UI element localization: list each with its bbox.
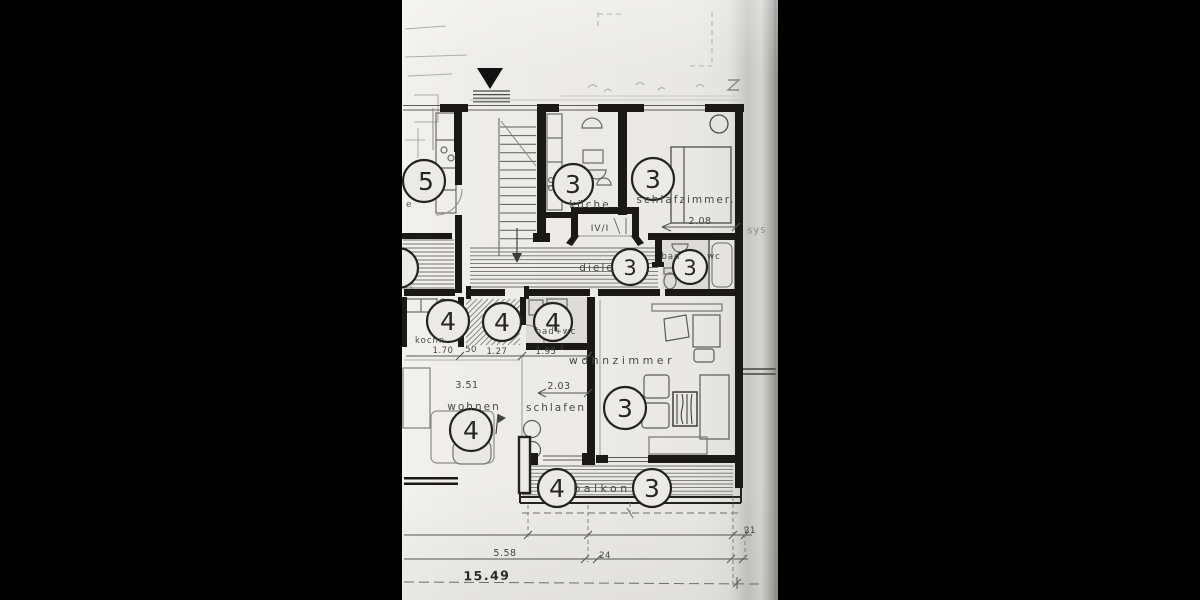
letterbox-bar-left bbox=[0, 0, 402, 600]
room-label-schlafen: schlafen bbox=[526, 402, 586, 414]
unit-number: 3 bbox=[645, 165, 661, 194]
room-label-wohnzimmer: wohnzimmer bbox=[569, 354, 675, 367]
dim-kochnische: 1.70 bbox=[433, 346, 454, 356]
letterbox-bar-right bbox=[778, 0, 1200, 600]
unit-number: 4 bbox=[440, 307, 456, 336]
dim-schlafzimmer: 2.08 bbox=[688, 216, 711, 227]
room-label-balkon: balkon bbox=[573, 482, 630, 495]
dim-bad: 1.95 bbox=[536, 347, 557, 357]
dim-total-left: 5.58 bbox=[493, 548, 516, 559]
unit-number: 3 bbox=[644, 474, 660, 503]
unit-marker-balkon-4: 4 bbox=[538, 469, 576, 507]
unit-marker-neighbor: 5 bbox=[403, 160, 445, 202]
unit-number: 3 bbox=[617, 394, 633, 423]
neighbor-label-fragment: e bbox=[406, 200, 412, 210]
room-label-diele: diele bbox=[579, 262, 614, 274]
room-label-wc: wc bbox=[707, 252, 721, 262]
unit-marker-wohnzimmer: 3 bbox=[604, 387, 646, 429]
unit-number: 4 bbox=[494, 308, 510, 337]
unit-number: 3 bbox=[565, 170, 581, 199]
unit-marker-balkon-3: 3 bbox=[633, 469, 671, 507]
unit-marker-wohnen: 4 bbox=[450, 409, 492, 451]
room-label-schlafzimmer: schlafzimmer. bbox=[637, 194, 736, 206]
scanned-floorplan-page: 5 3 3 3 3 3 bbox=[0, 0, 1200, 600]
unit-marker-flur-4: 4 bbox=[483, 303, 521, 341]
room-label-kueche: küche bbox=[569, 199, 610, 211]
unit-number: 3 bbox=[683, 256, 696, 280]
dim-gap-right: 21 bbox=[744, 526, 756, 536]
room-label-wohnen: wohnen bbox=[447, 401, 500, 413]
room-label-kochnische: kochn. bbox=[415, 336, 449, 346]
room-label-bad-wc-4: bad+wc bbox=[536, 327, 577, 337]
entrance-code-label: IV/I bbox=[591, 224, 610, 234]
dim-gap-mid: 24 bbox=[599, 551, 611, 561]
unit-marker-kueche: 3 bbox=[553, 164, 593, 204]
room-label-bad: bad bbox=[662, 252, 681, 262]
dim-schlafen: 2.03 bbox=[547, 381, 570, 392]
stair-down-arrow-icon bbox=[512, 253, 522, 263]
entrance-marker-icon bbox=[473, 68, 510, 102]
unit-number: 5 bbox=[418, 167, 434, 196]
dim-small: 50 bbox=[465, 345, 477, 355]
unit-marker-diele: 3 bbox=[612, 249, 648, 285]
stairwell bbox=[499, 118, 536, 263]
dim-flur: 1.27 bbox=[487, 347, 508, 357]
unit-number: 3 bbox=[623, 256, 636, 280]
margin-note: sys bbox=[747, 224, 767, 236]
unit-number: 4 bbox=[549, 474, 565, 503]
dim-bad-sup: 5 bbox=[560, 345, 564, 352]
dim-wohnen: 3.51 bbox=[455, 380, 478, 391]
unit-number: 4 bbox=[463, 416, 479, 445]
dim-total-length: 15.49 bbox=[463, 568, 510, 584]
